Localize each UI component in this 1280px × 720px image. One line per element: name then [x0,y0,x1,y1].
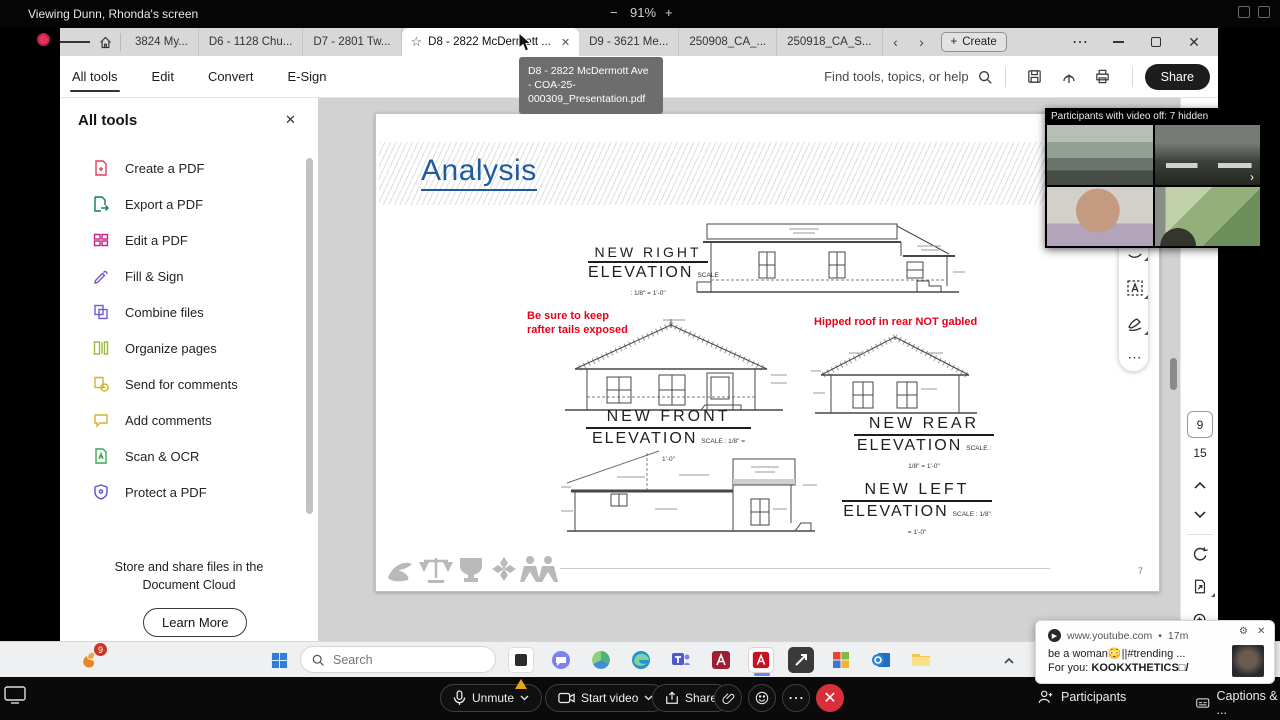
tab-scroll-left-icon[interactable]: ‹ [883,34,909,50]
front-elevation-drawing [559,317,791,417]
menu-all-tools[interactable]: All tools [70,57,120,96]
teams-chat-icon[interactable] [548,647,574,673]
start-video-button[interactable]: Start video [545,684,666,712]
notification-source: www.youtube.com [1067,630,1152,642]
close-button[interactable]: ✕ [1188,36,1200,48]
store-icon[interactable] [828,647,854,673]
tab-bar: 3824 My... D6 - 1128 Chu... D7 - 2801 Tw… [60,28,1218,56]
print-icon[interactable] [1086,68,1120,85]
home-icon[interactable] [90,28,120,56]
tool-fill-sign[interactable]: Fill & Sign [78,258,288,294]
hamburger-menu-icon[interactable] [60,28,90,56]
current-page-input[interactable]: 9 [1187,411,1213,438]
notification-time: 17m [1168,630,1188,642]
teams-icon[interactable] [668,647,694,673]
camera-icon [558,692,575,704]
more-options-icon[interactable]: ⋯ [1074,36,1086,48]
all-tools-panel: All tools ✕ Create a PDF Export a PDF Ed… [60,98,318,641]
unmute-button[interactable]: Unmute [440,684,542,712]
menu-esign[interactable]: E-Sign [285,57,328,96]
access-icon[interactable] [708,647,734,673]
tab-250908[interactable]: 250908_CA_... [679,28,777,56]
tool-export-pdf[interactable]: Export a PDF [78,186,288,222]
create-pdf-icon [92,159,110,177]
chevron-down-icon[interactable] [520,695,529,701]
expand-videos-icon[interactable]: › [1250,170,1254,184]
acrobat-icon[interactable] [748,647,774,673]
search-icon [977,69,993,85]
add-comments-icon [92,411,110,429]
microphone-icon [453,690,466,706]
minimize-button[interactable] [1112,36,1124,48]
right-elevation-drawing [689,216,966,300]
widgets-icon[interactable]: 9 [76,647,102,673]
tool-protect-pdf[interactable]: Protect a PDF [78,474,288,510]
participants-header: Participants with video off: 7 hidden [1051,111,1208,122]
taskbar-search[interactable] [300,646,496,673]
export-pdf-icon [92,195,110,213]
quick-tools-toolbar: ⋯ [1118,230,1149,372]
zoom-level: 91% [630,5,656,20]
tool-scan-ocr[interactable]: Scan & OCR [78,438,288,474]
youtube-icon: ▶ [1048,629,1061,642]
widgets-badge: 9 [94,643,107,656]
notification-toast[interactable]: ▶ www.youtube.com • 17m ⚙ ✕ be a woman😳|… [1035,620,1275,684]
total-pages: 15 [1187,446,1213,460]
find-tools-search[interactable]: Find tools, topics, or help [824,69,993,85]
organize-pages-icon [92,339,110,357]
edit-text-icon[interactable] [1124,279,1145,297]
menu-edit[interactable]: Edit [150,57,176,96]
reactions-button[interactable] [748,684,776,712]
signature-icon[interactable] [1124,315,1145,333]
slide-title: Analysis [421,154,537,191]
left-elevation-label: NEW LEFT ELEVATIONSCALE : 1/8" = 1'-0" [842,481,992,539]
notification-settings-icon[interactable]: ⚙ [1239,626,1248,637]
tool-create-pdf[interactable]: Create a PDF [78,150,288,186]
mouse-cursor [518,32,533,53]
tab-tooltip: D8 - 2822 McDermott Ave - COA-25-000309_… [519,57,663,114]
send-comments-icon [92,375,110,393]
more-controls-button[interactable]: ⋯ [782,684,810,712]
start-button[interactable] [266,647,292,673]
pin-icon[interactable] [1238,6,1250,18]
tool-add-comments[interactable]: Add comments [78,402,288,438]
zoom-out-button[interactable]: − [610,5,618,20]
outlook-icon[interactable] [868,647,894,673]
edit-pdf-icon [92,231,110,249]
tool-organize-pages[interactable]: Organize pages [78,330,288,366]
panel-close-icon[interactable]: ✕ [285,112,296,128]
viewing-label: Viewing Dunn, Rhonda's screen [28,7,198,21]
star-icon[interactable]: ☆ [411,34,423,50]
menu-convert[interactable]: Convert [206,57,256,96]
pdf-page: Analysis NEW RIGHT ELEVATIONSCALE : 1/8"… [375,113,1160,592]
captions-icon [1196,696,1210,710]
participant-video-2 [1155,125,1261,185]
fill-sign-icon [92,267,110,285]
audio-warning-icon [515,679,527,689]
left-elevation-drawing [559,449,849,537]
combine-files-icon [92,303,110,321]
tab-d6[interactable]: D6 - 1128 Chu... [199,28,304,56]
save-icon[interactable] [1018,68,1052,85]
attach-button[interactable] [714,684,742,712]
zoom-in-button[interactable]: + [665,5,673,20]
slide-footer-line [560,568,1050,569]
participants-video-panel: Participants with video off: 7 hidden › [1045,108,1262,248]
rotate-page-icon[interactable] [1188,546,1212,563]
tab-d8-active[interactable]: ☆ D8 - 2822 McDermott ... ✕ [402,28,580,56]
tab-close-icon[interactable]: ✕ [561,36,570,49]
more-tools-icon[interactable]: ⋯ [1124,349,1145,366]
learn-more-button[interactable]: Learn More [143,608,247,637]
tool-edit-pdf[interactable]: Edit a PDF [78,222,288,258]
captions-button[interactable]: Captions & ... [1196,689,1280,717]
paperclip-icon [722,692,735,705]
document-cloud-text: Store and share files in the Document Cl… [100,558,278,594]
notification-thumbnail [1232,645,1264,677]
annotation-dot [37,33,50,46]
smiley-icon [755,691,769,705]
upload-icon[interactable] [1052,68,1086,86]
participant-video-3 [1047,187,1153,247]
share-button[interactable]: Share [1145,64,1210,90]
participant-video-4 [1155,187,1261,247]
notification-line2: For you: KOOKXTHETICS□/ [1048,662,1189,674]
participants-button[interactable]: Participants [1038,689,1126,704]
protect-pdf-icon [92,483,110,501]
rear-elevation-label: NEW REAR ELEVATIONSCALE : 1/8" = 1'-0" [854,415,994,473]
plus-icon: + [951,36,958,48]
fullscreen-icon[interactable] [1258,6,1270,18]
tab-d9[interactable]: D9 - 3621 Me... [579,28,679,56]
edge-icon[interactable] [628,647,654,673]
notification-line1: be a woman😳||#trending ... [1048,647,1185,660]
active-app-indicator [754,673,770,676]
slide-page-number: 7 [1138,566,1143,576]
page-view-icon[interactable] [1188,578,1212,595]
notification-close-icon[interactable]: ✕ [1257,626,1265,637]
document-scrollbar[interactable] [1170,358,1177,390]
quick-assist-icon[interactable] [588,647,614,673]
tab-scroll-right-icon[interactable]: › [909,34,935,50]
create-tab-button[interactable]: +Create [941,32,1007,52]
participants-icon [1038,689,1054,704]
tool-combine-files[interactable]: Combine files [78,294,288,330]
snip-icon[interactable] [788,647,814,673]
maximize-button[interactable] [1150,36,1162,48]
rear-elevation-drawing [809,327,987,417]
share-screen-icon [665,691,679,705]
scan-ocr-icon [92,447,110,465]
search-input[interactable] [333,653,473,667]
next-page-icon[interactable] [1188,510,1212,520]
tool-send-comments[interactable]: Send for comments [78,366,288,402]
participant-video-1 [1047,125,1153,185]
panel-title: All tools [78,112,137,129]
photos-app-icon[interactable] [508,647,534,673]
tab-250918[interactable]: 250918_CA_S... [777,28,882,56]
hidden-icons-chevron[interactable] [996,647,1022,673]
file-explorer-icon[interactable] [908,647,934,673]
tab-d7[interactable]: D7 - 2801 Tw... [303,28,401,56]
tab-3824[interactable]: 3824 My... [125,28,199,56]
shared-screen-icon[interactable] [4,685,28,710]
slide-footer-icons [384,552,560,586]
search-icon [311,653,325,667]
leave-meeting-button[interactable]: ✕ [816,684,844,712]
sidebar-scrollbar[interactable] [306,158,313,514]
previous-page-icon[interactable] [1188,480,1212,490]
screen: Viewing Dunn, Rhonda's screen − 91% + 38… [0,0,1280,720]
screen-share-banner: Viewing Dunn, Rhonda's screen − 91% + [0,0,1280,28]
